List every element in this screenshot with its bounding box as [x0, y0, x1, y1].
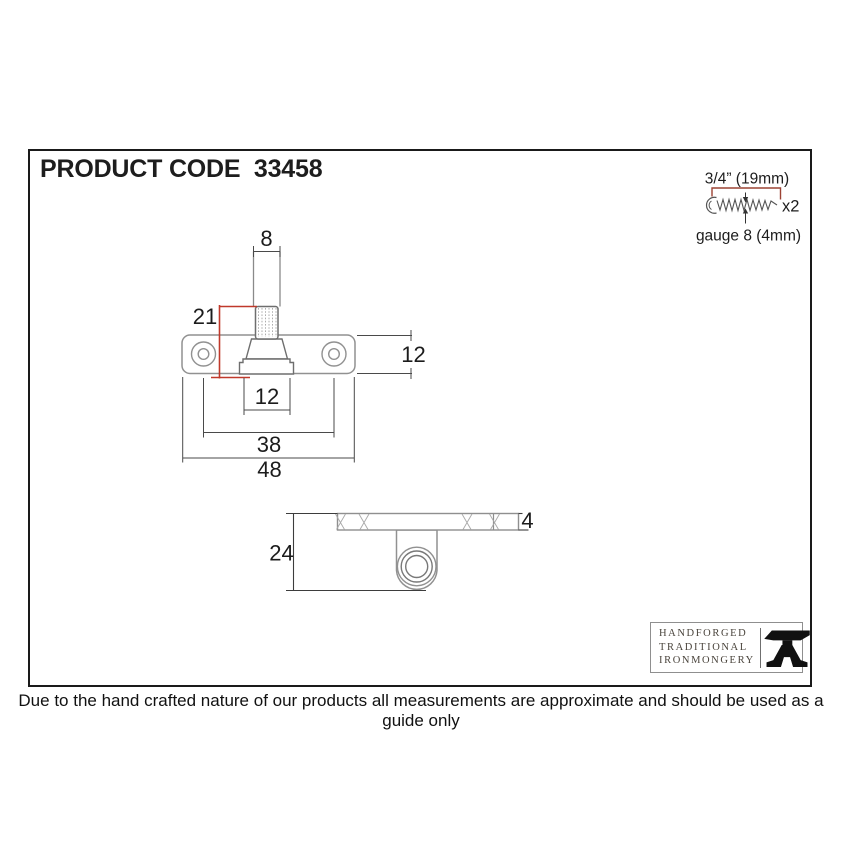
dim-plate-width-label: 48 — [257, 457, 281, 482]
screw-head — [707, 197, 717, 213]
brand-line-3: IRONMONGERY — [659, 654, 755, 668]
dim-plate-thickness-label: 4 — [521, 508, 533, 533]
screw-quantity-label: x2 — [782, 198, 799, 216]
pin-shaft-lines — [254, 252, 281, 307]
screw-hole-right — [322, 342, 346, 366]
dim-total-depth-label: 24 — [269, 541, 293, 566]
dim-pin-width-label: 8 — [260, 226, 272, 251]
pin-knurled — [256, 307, 279, 340]
pin-base-flange — [240, 359, 294, 374]
disclaimer-text: Due to the hand crafted nature of our pr… — [0, 691, 842, 731]
top-view: 8 21 12 12 — [182, 226, 426, 482]
screw-detail: 3/4” (19mm) x2 gauge 8 (4mm) — [696, 171, 801, 245]
anvil-icon — [761, 626, 813, 670]
screw-hole-left — [192, 342, 216, 366]
brand-logo-box: HANDFORGED TRADITIONAL IRONMONGERY — [650, 622, 803, 673]
screw-threads — [717, 200, 777, 211]
brand-line-2: TRADITIONAL — [659, 641, 755, 655]
dim-plate-height-label: 12 — [401, 342, 425, 367]
dim-pin-height-label: 21 — [193, 304, 217, 329]
screw-length-label: 3/4” (19mm) — [705, 171, 789, 188]
drawing-sheet: PRODUCT CODE 33458 3/4” (19mm) x2 gauge … — [0, 0, 842, 842]
dim-hole-spacing-label: 38 — [257, 432, 281, 457]
brand-line-1: HANDFORGED — [659, 627, 755, 641]
dim-base-width-label: 12 — [255, 384, 279, 409]
screw-gauge-label: gauge 8 (4mm) — [696, 228, 801, 245]
pin-cone — [246, 339, 288, 359]
side-view: 24 4 — [269, 508, 533, 591]
brand-logo-text: HANDFORGED TRADITIONAL IRONMONGERY — [651, 627, 760, 668]
